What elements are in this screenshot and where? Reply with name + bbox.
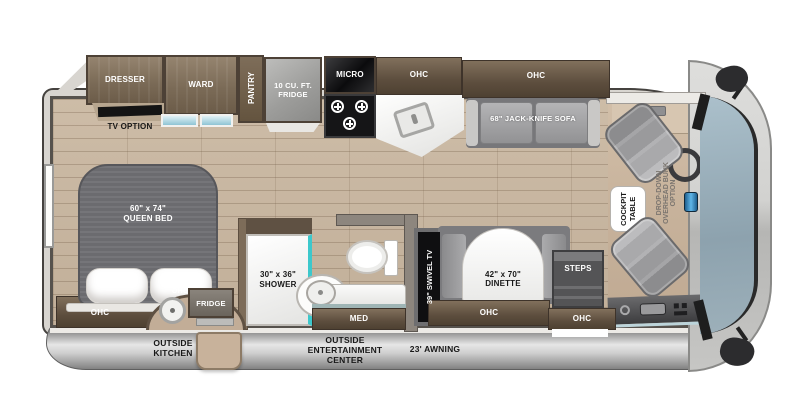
windshield [700,96,758,334]
burner-icon [355,100,368,113]
cup-holder-console [684,192,698,212]
outside-kitchen-label: OUTSIDE KITCHEN [138,338,208,358]
fridge-10cuft: 10 CU. FT. FRIDGE [264,57,322,123]
pillow-left [86,268,148,304]
tv-option-label: TV OPTION [92,122,168,132]
fridge-10cuft-label: 10 CU. FT. FRIDGE [267,81,319,99]
burner-icon [331,100,344,113]
entry-door-threshold [552,329,608,337]
dresser-label: DRESSER [105,75,145,85]
bed-name-label: QUEEN BED [123,214,172,224]
entry-ohc-label: OHC [548,314,616,324]
shower-size-label: 30" x 36" [260,270,296,280]
sofa-cushion-right [535,102,588,144]
med-cabinet: MED [312,308,406,330]
dinette-size-label: 42" x 70" [485,270,521,280]
fridge-door-edge [266,123,320,132]
wardrobe-label: WARD [188,80,213,90]
bed-ohc-label: OHC [70,308,130,318]
awning-length-label: 23' AWNING [395,344,475,354]
toilet-bowl [346,240,388,274]
bath-sink-drain-icon [318,290,323,295]
entry-step-line2 [554,296,602,299]
dresser-cabinet: DRESSER [86,55,164,105]
dinette-name-label: DINETTE [485,279,521,289]
steps-label: STEPS [552,264,604,274]
cooktop [324,94,376,138]
outside-fridge-label: FRIDGE [196,299,226,308]
dash-gauge-icon [620,305,630,315]
wardrobe-cabinet: WARD [164,55,238,115]
sofa-cushion-left [480,102,533,144]
dash-button-icon [674,311,687,315]
drop-down-bunk-label: DROP-DOWN OVERHEAD BUNK OPTION [652,147,680,239]
pantry-label: PANTRY [245,63,257,113]
sofa-label: 68" JACK-KNIFE SOFA [466,114,600,123]
dash-screen-icon [640,303,666,316]
sofa-armrest-left [466,100,478,146]
swivel-tv-label: 39" SWIVEL TV [423,235,435,319]
dash-button-icon [682,303,687,308]
microwave: MICRO [324,56,376,94]
outside-sink-drain-icon [170,308,175,313]
sofa-ohc-label: OHC [462,71,610,81]
microwave-label: MICRO [336,70,364,80]
bed-size-label: 60" x 74" [130,204,166,214]
med-label: MED [350,314,368,324]
dinette-ohc-label: OHC [428,308,550,318]
ward-drawer-right [200,114,233,127]
rv-floorplan-diagram: OUTSIDE KITCHEN OUTSIDE ENTERTAINMENT CE… [0,0,800,408]
dinette-table: 42" x 70" DINETTE [462,228,544,304]
cab-top-band [606,92,706,104]
entry-step-line1 [554,286,602,289]
outside-kitchen-ohc-label: OHC [158,288,202,296]
entry-steps-top [554,252,602,261]
shower-name-label: SHOWER [259,280,296,290]
sofa-armrest-right [588,100,600,146]
dashboard [608,294,709,327]
outside-entertainment-label: OUTSIDE ENTERTAINMENT CENTER [299,335,391,366]
kitchen-ohc-label: OHC [376,70,462,80]
cockpit-table-label: COCKPIT TABLE [616,183,640,235]
rear-window [44,164,54,248]
dash-button-icon [674,303,679,308]
outside-fridge-step [196,318,234,326]
burner-icon [343,117,356,130]
shower-top-wall [246,218,312,234]
